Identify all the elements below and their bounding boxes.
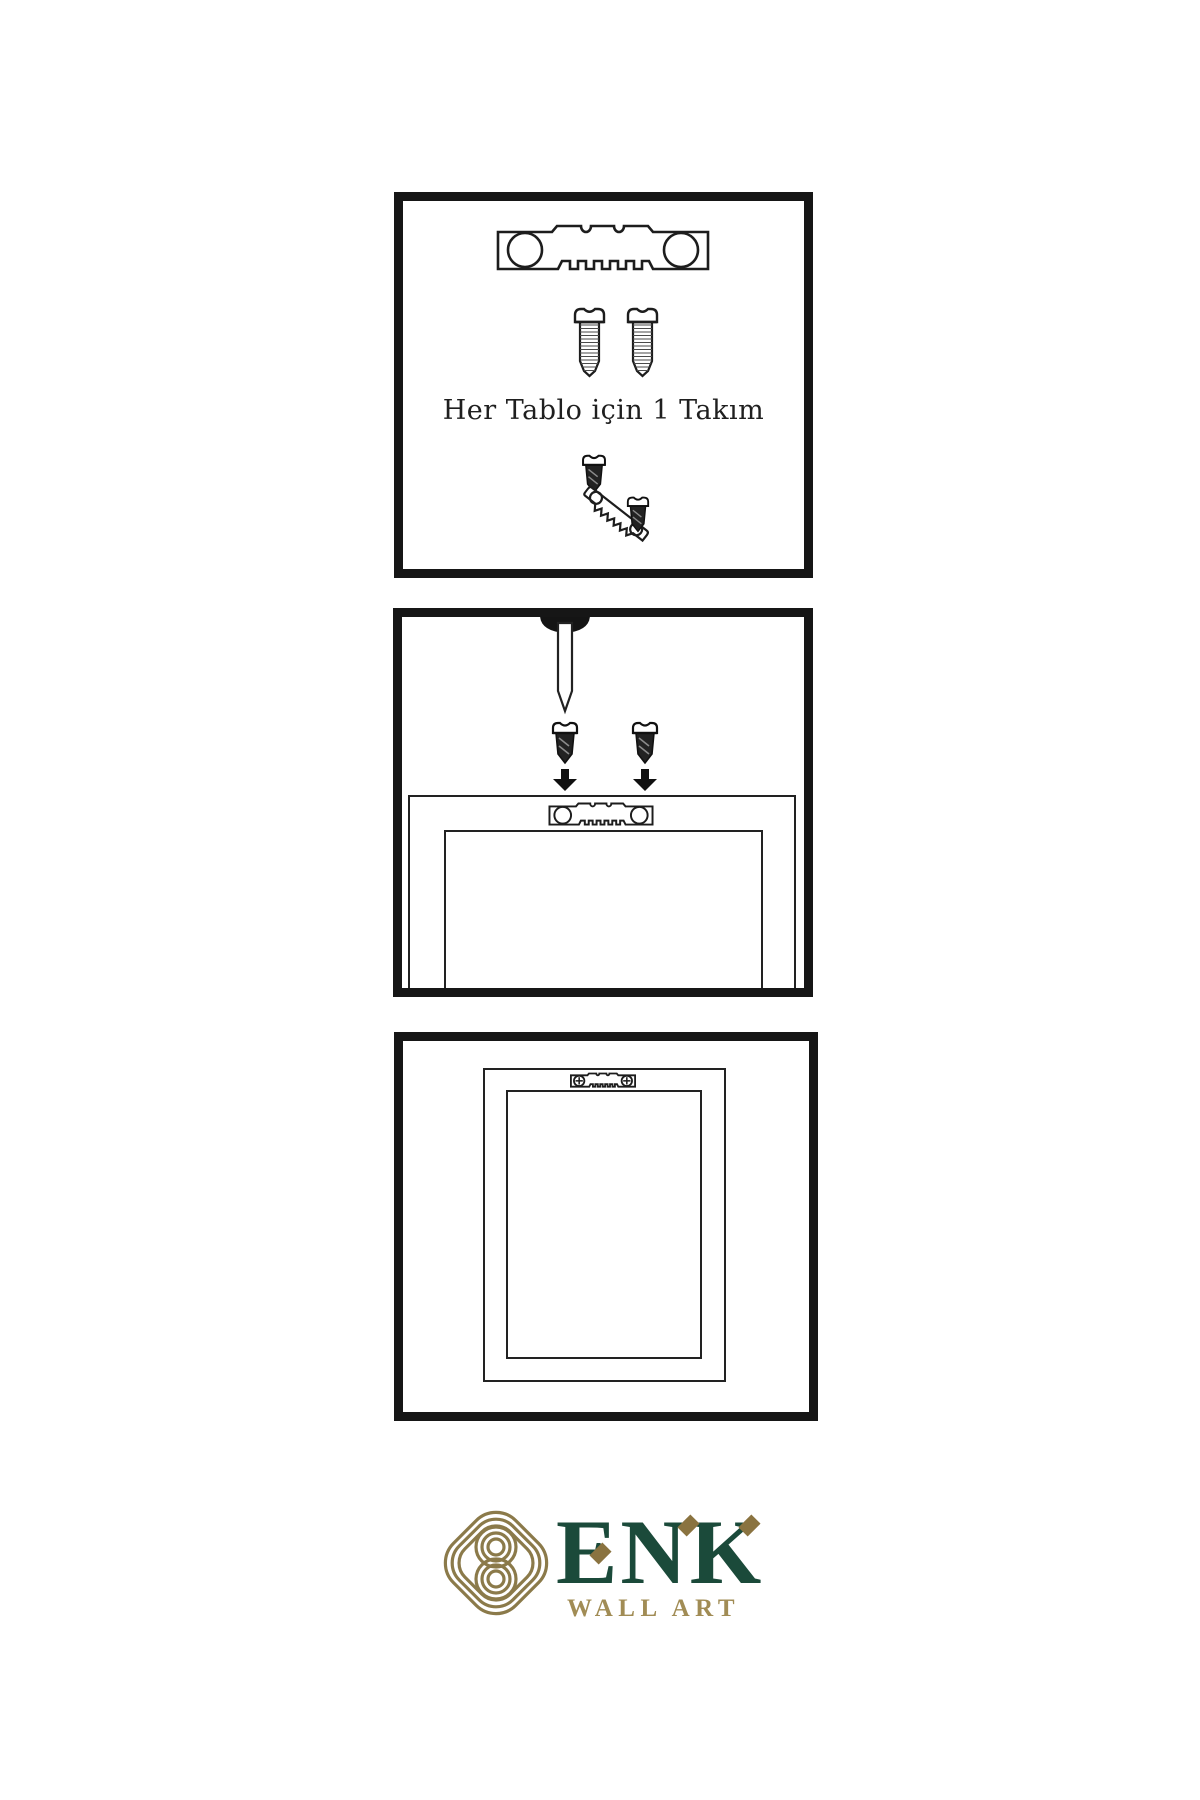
panel-step-2-install xyxy=(393,608,813,997)
screw-dark-icon xyxy=(625,495,651,534)
sawtooth-hanger-icon xyxy=(548,802,654,829)
down-arrow-icon xyxy=(553,769,577,791)
page: { "colors": { "panel_border": "#161616",… xyxy=(0,0,1200,1800)
frame-front-inner-edge xyxy=(506,1090,702,1359)
kit-caption: Her Tablo için 1 Takım xyxy=(403,395,804,426)
down-arrow-icon xyxy=(633,769,657,791)
sawtooth-hanger-icon xyxy=(495,223,711,278)
panel-step-3-hung-frame xyxy=(394,1032,818,1421)
panel-step-1-kit: Her Tablo için 1 Takım xyxy=(394,192,813,578)
screw-icon xyxy=(571,305,608,381)
screw-dark-icon xyxy=(630,720,660,766)
knot-logo-icon xyxy=(436,1500,556,1626)
brand-subtitle: WALL ART xyxy=(567,1596,740,1621)
screw-dark-icon xyxy=(550,720,580,766)
frame-back-inner-edge xyxy=(444,830,763,997)
nail-icon xyxy=(538,615,592,717)
brand-name: ENK xyxy=(556,1506,764,1598)
frame-front xyxy=(483,1068,726,1382)
sawtooth-hanger-screwed-icon xyxy=(570,1072,636,1090)
screw-icon xyxy=(624,305,661,381)
